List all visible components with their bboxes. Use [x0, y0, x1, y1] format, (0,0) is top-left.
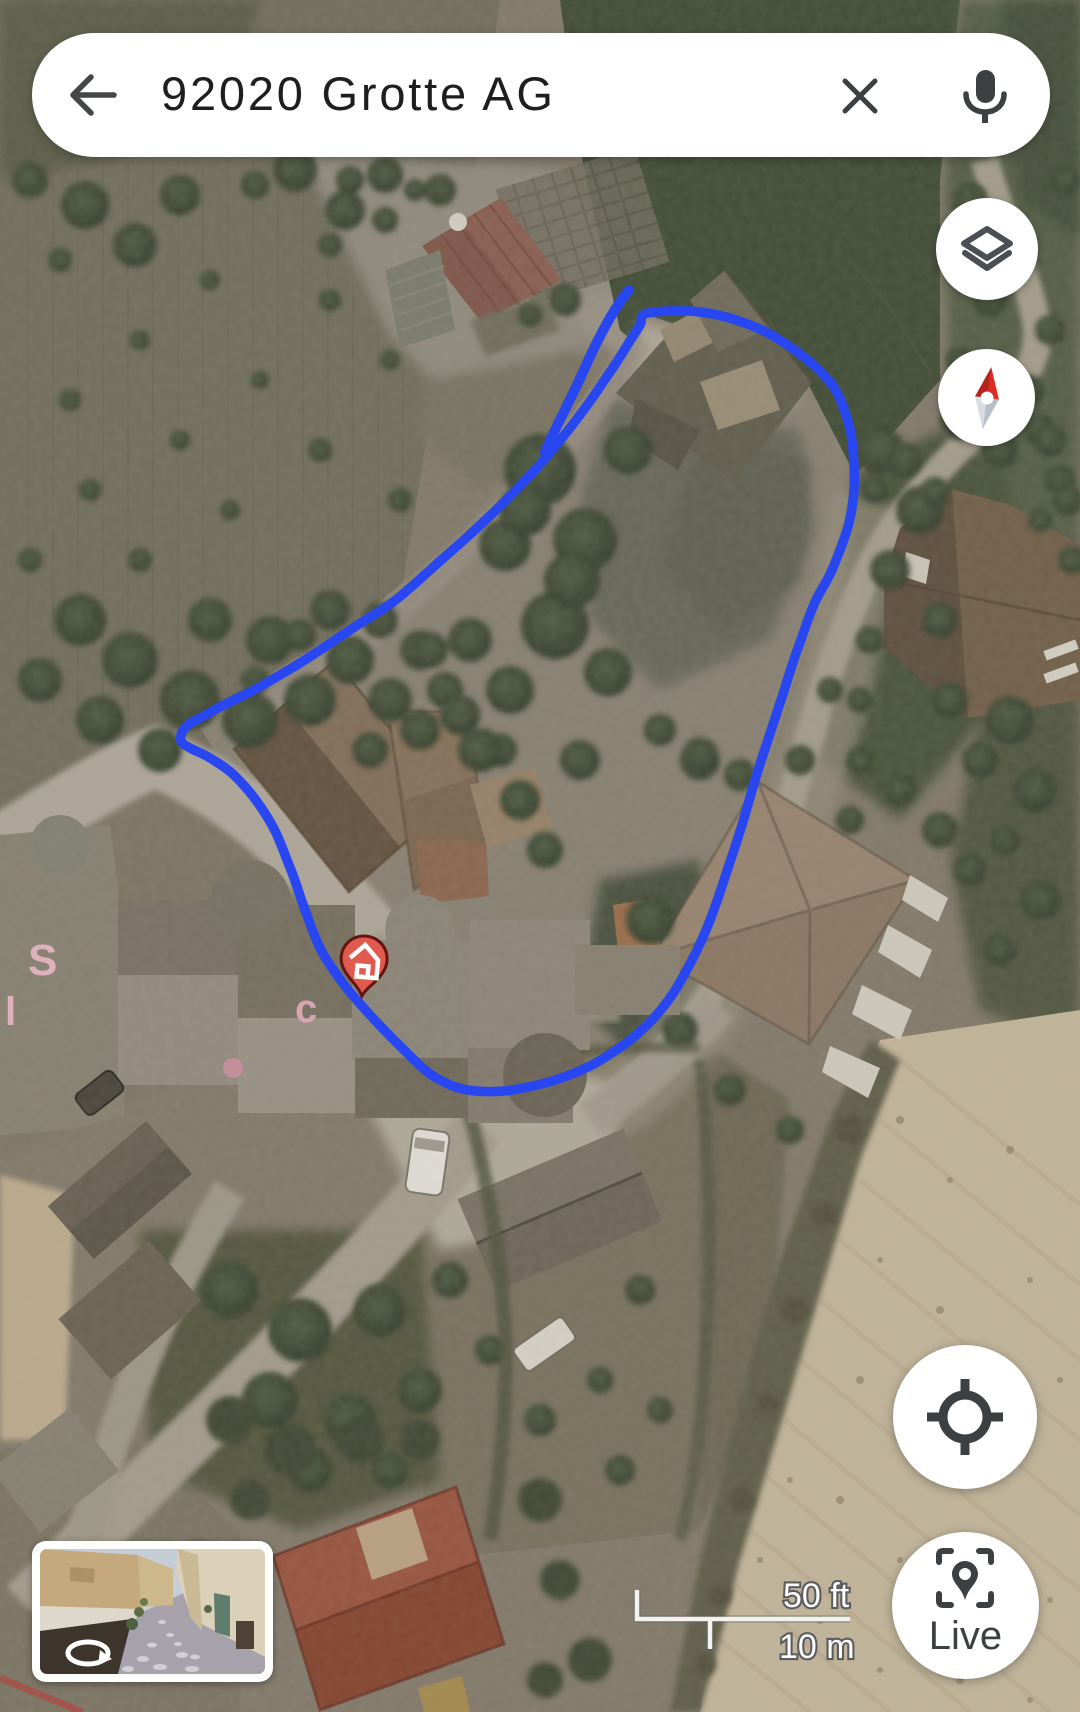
svg-text:10 m: 10 m	[779, 1628, 855, 1666]
svg-text:50 ft: 50 ft	[783, 1577, 850, 1615]
